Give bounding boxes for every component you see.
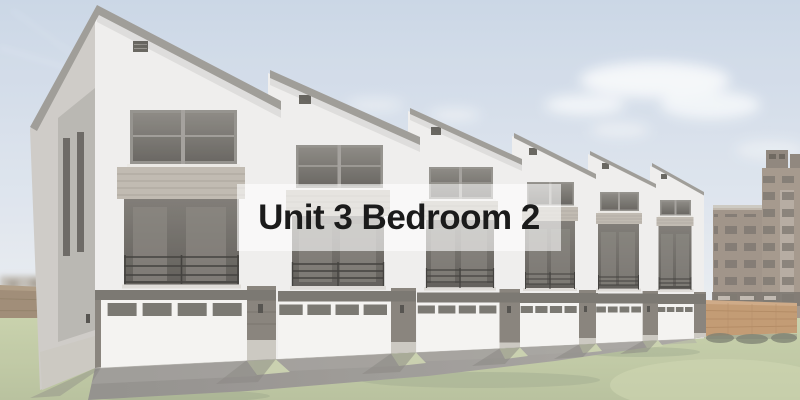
unit-caption-label: Unit 3 Bedroom 2 — [258, 198, 540, 238]
townhome-rendering-image: Unit 3 Bedroom 2 — [0, 0, 800, 400]
unit-caption-overlay: Unit 3 Bedroom 2 — [237, 184, 561, 251]
